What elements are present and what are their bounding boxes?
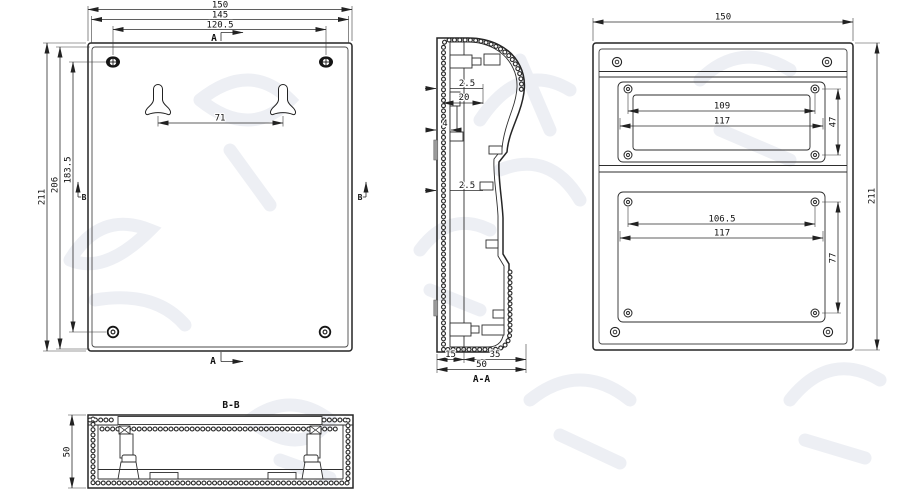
front-inner-edge [599, 49, 847, 344]
latch-box-icon [310, 426, 321, 434]
screw-icon [612, 57, 621, 66]
section-label: A [211, 33, 217, 44]
dim-text: 117 [714, 117, 730, 127]
screw-icon [108, 327, 119, 338]
dim-total-depth: 50 [437, 360, 526, 370]
dim-text: 211 [868, 188, 878, 204]
dim-lower-width: 117 [620, 229, 823, 242]
dim-front-overall-height: 211 [855, 43, 880, 350]
screw-icon [811, 151, 819, 159]
screw-icon [811, 198, 819, 206]
screw-icon [624, 151, 632, 159]
latch-box-icon [119, 426, 130, 434]
section-label: B [358, 193, 363, 202]
dim-text: 109 [714, 102, 730, 112]
dim-text: 50 [63, 447, 73, 458]
dim-text: 2.5 [459, 79, 475, 89]
dim-lower-screw-span: 106.5 [628, 207, 815, 227]
dim-text: 77 [829, 253, 839, 264]
section-marker-b-right: B [358, 182, 366, 202]
technical-drawing-canvas: 150 145 120.5 A A 71 [0, 0, 900, 500]
dim-bb-depth: 50 [63, 415, 87, 488]
dim-front-overall-width: 150 [593, 13, 853, 42]
dim-text: 50 [476, 360, 487, 370]
dim-text: 4 [442, 119, 447, 129]
screw-icon [106, 56, 120, 67]
screw-icon [319, 56, 333, 67]
dim-text: 145 [212, 11, 228, 21]
screw-icon [822, 57, 831, 66]
dim-text: 183.5 [64, 156, 74, 183]
seal-clip [434, 140, 438, 160]
dim-text: 120.5 [206, 21, 233, 31]
dim-text: 211 [38, 189, 48, 205]
dim-text: 71 [215, 114, 226, 124]
section-label: B [82, 193, 87, 202]
section-marker-a-bottom: A [210, 352, 243, 367]
screw-icon [624, 198, 632, 206]
screw-icon [610, 327, 619, 336]
dim-screw-span-h: 120.5 [113, 21, 326, 56]
dim-text: 117 [714, 229, 730, 239]
section-title: A-A [473, 374, 490, 385]
dim-boss-depth: 20 [443, 93, 483, 103]
screw-icon [823, 327, 832, 336]
section-label: A [210, 356, 216, 367]
drawing-sheet: 150 145 120.5 A A 71 [0, 0, 900, 500]
section-title: B-B [222, 400, 239, 411]
dim-upper-screw-span: 109 [628, 94, 815, 114]
dim-text: 20 [459, 93, 470, 103]
dim-text: 206 [51, 177, 61, 193]
screw-icon [624, 309, 632, 317]
dim-text: 150 [212, 1, 228, 11]
dim-text: 47 [829, 117, 839, 128]
keyhole-slot-icon [145, 85, 170, 115]
dim-text: 35 [490, 350, 501, 360]
lid-plate [118, 417, 322, 425]
screw-icon [811, 309, 819, 317]
lower-recess [618, 192, 825, 322]
dim-text: 15 [445, 350, 456, 360]
screw-icon [624, 85, 632, 93]
dim-text: 150 [715, 13, 731, 23]
screw-icon [811, 85, 819, 93]
seal-clip [434, 300, 438, 316]
section-marker-b-left: B [78, 182, 87, 202]
screw-icon [320, 327, 331, 338]
dim-wall-lower: 2.5 [425, 181, 483, 191]
dim-text: 2.5 [459, 181, 475, 191]
back-view: 150 145 120.5 A A 71 [38, 1, 367, 368]
dim-text: 106.5 [708, 215, 735, 225]
